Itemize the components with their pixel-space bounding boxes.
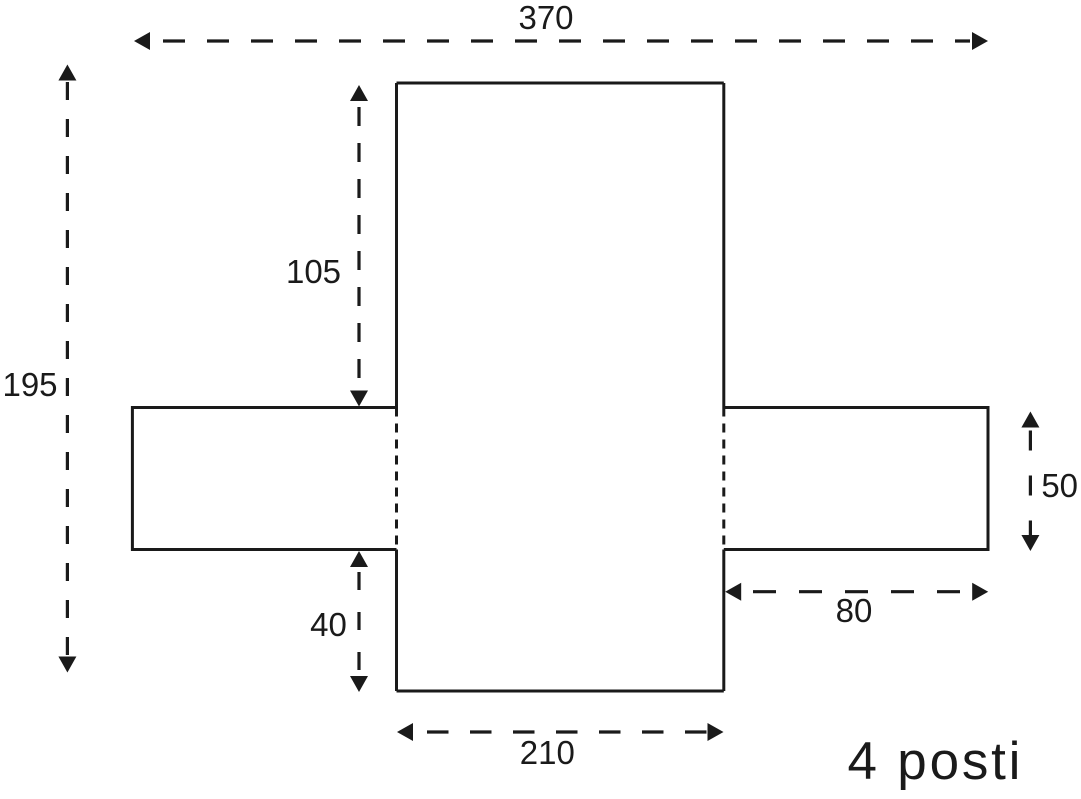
svg-text:50: 50 [1041, 467, 1078, 504]
svg-text:4 posti: 4 posti [848, 732, 1024, 791]
svg-text:210: 210 [520, 734, 575, 771]
svg-text:105: 105 [286, 253, 341, 290]
svg-text:40: 40 [310, 606, 347, 643]
svg-text:195: 195 [2, 366, 57, 403]
svg-text:370: 370 [518, 0, 573, 36]
svg-text:80: 80 [836, 592, 873, 629]
